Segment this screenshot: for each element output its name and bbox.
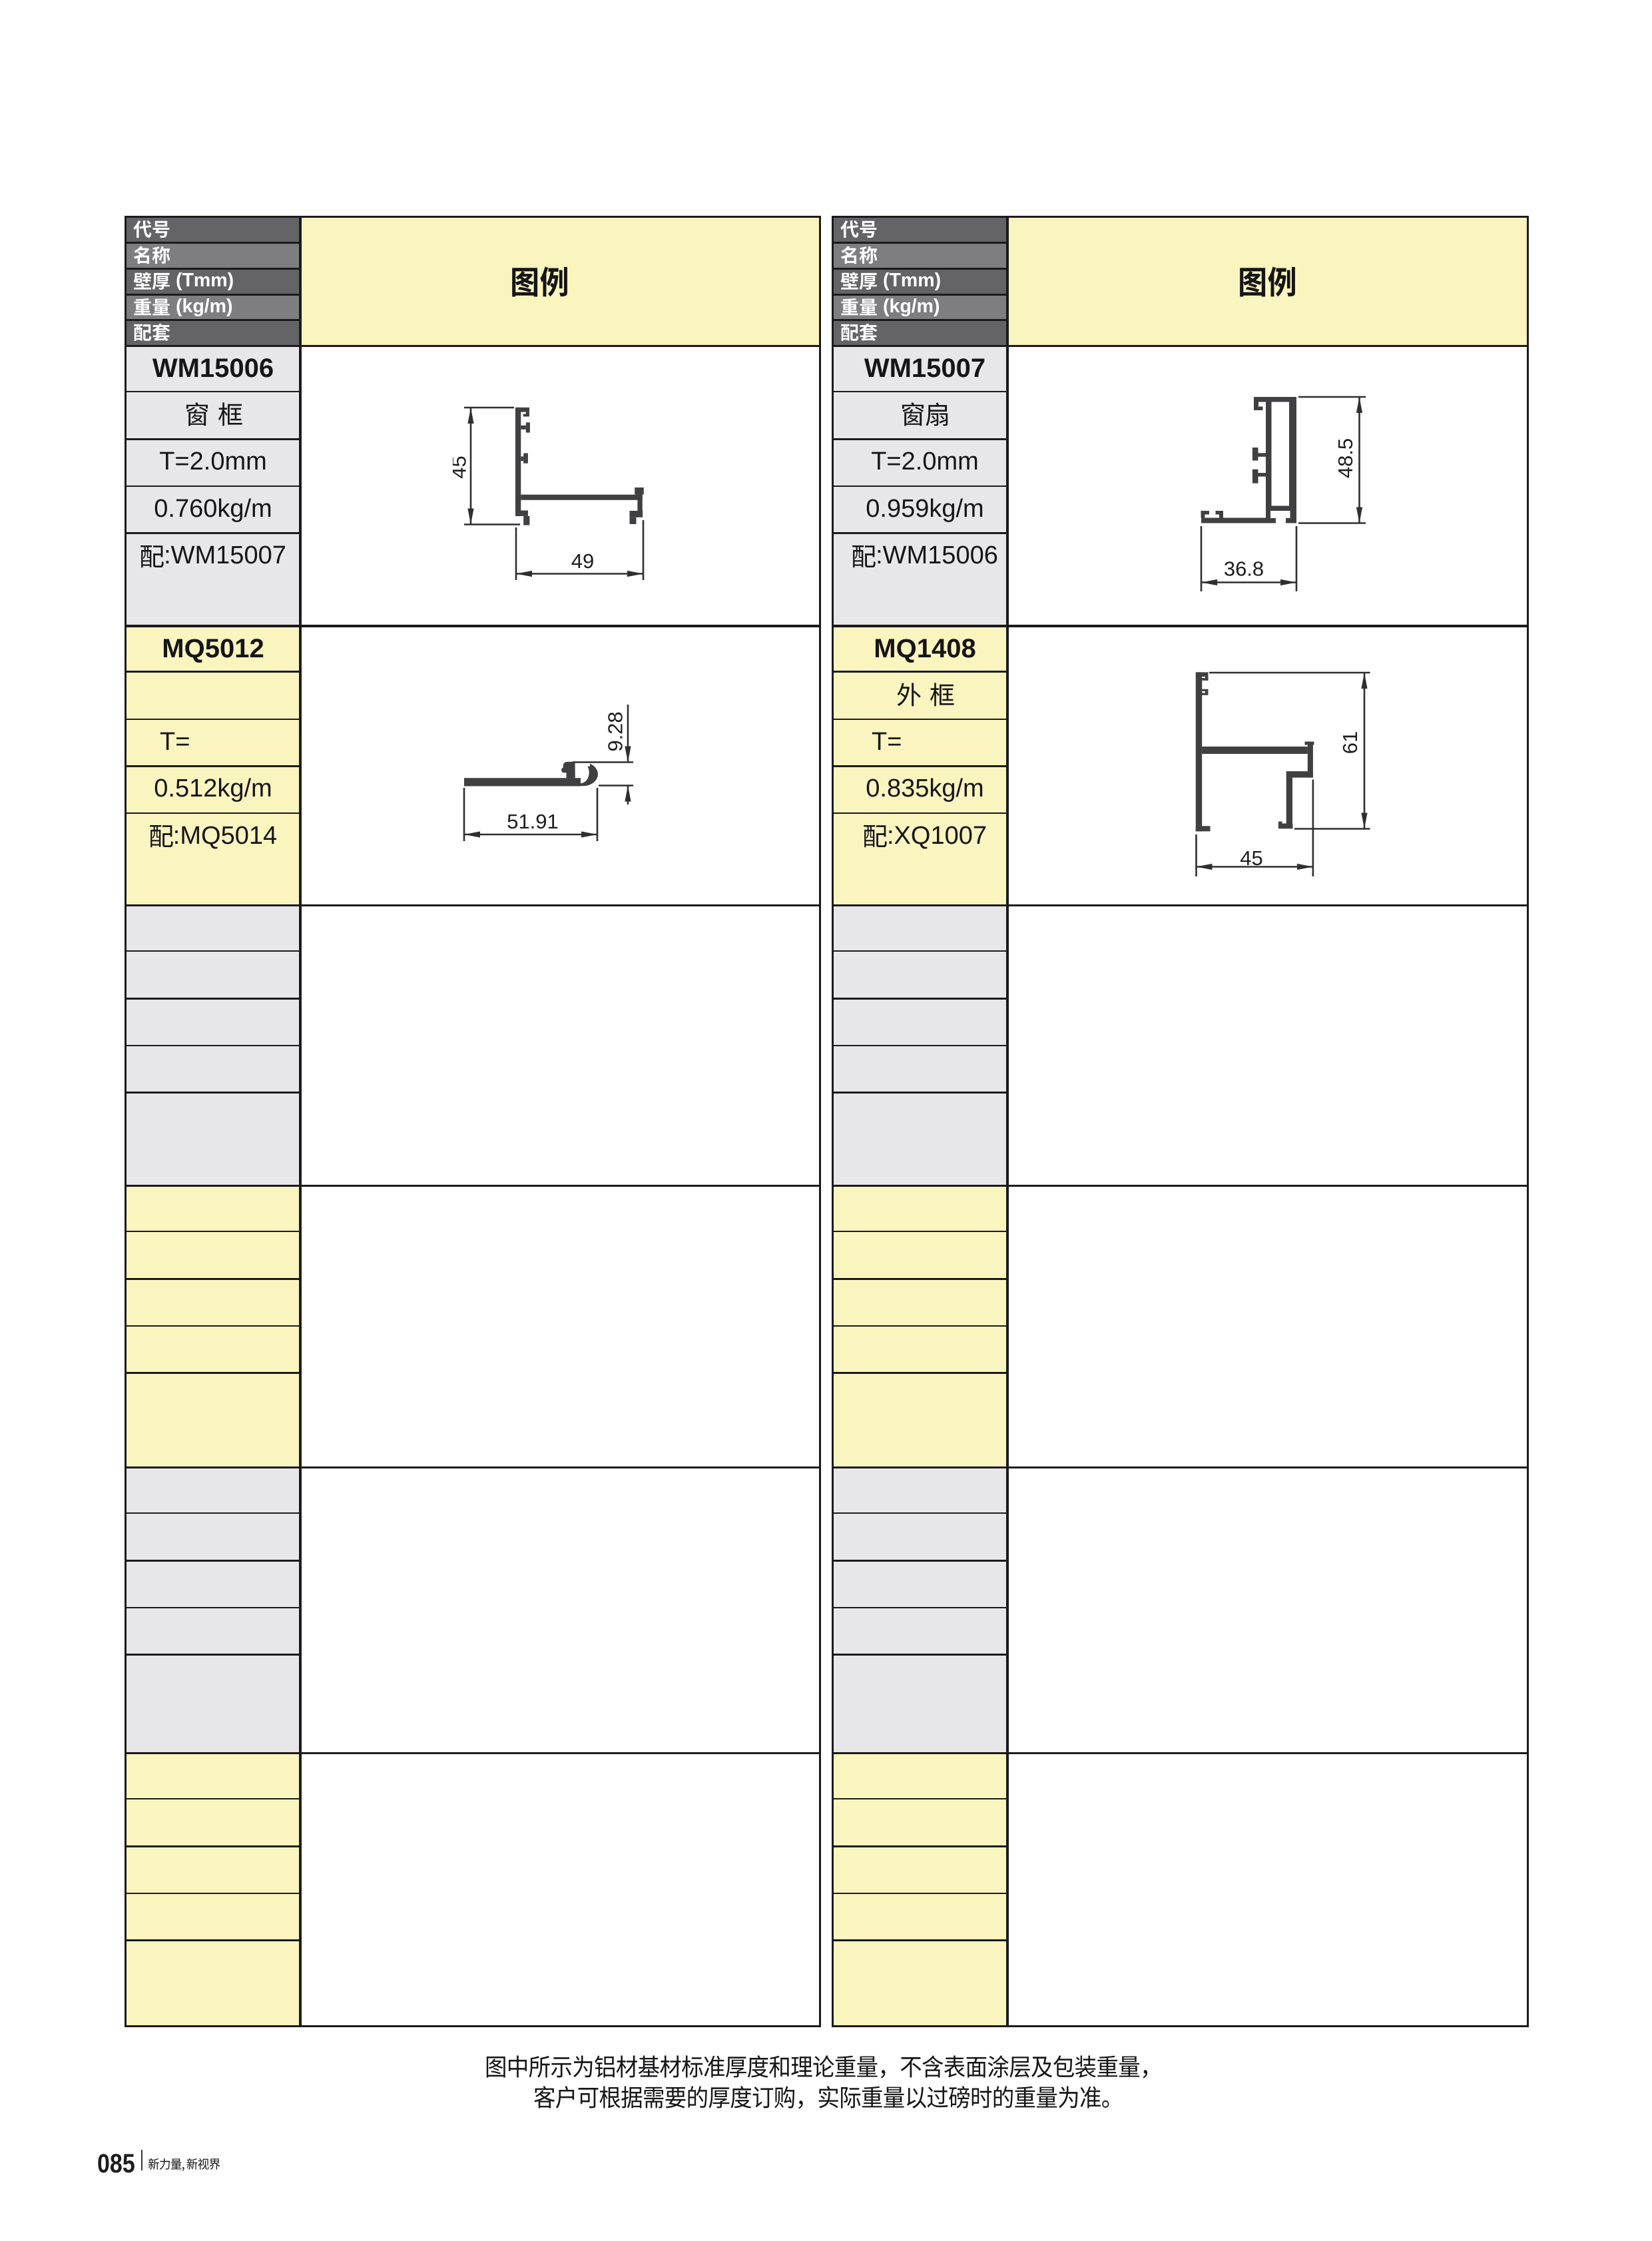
svg-text:61: 61 <box>1338 731 1362 754</box>
svg-text:48.5: 48.5 <box>1334 438 1357 478</box>
svg-text:45: 45 <box>1240 846 1262 870</box>
svg-text:45: 45 <box>453 456 471 478</box>
svg-text:49: 49 <box>571 549 594 573</box>
svg-text:9.28: 9.28 <box>604 711 627 751</box>
svg-text:36.8: 36.8 <box>1224 557 1264 581</box>
svg-text:51.91: 51.91 <box>507 810 559 833</box>
